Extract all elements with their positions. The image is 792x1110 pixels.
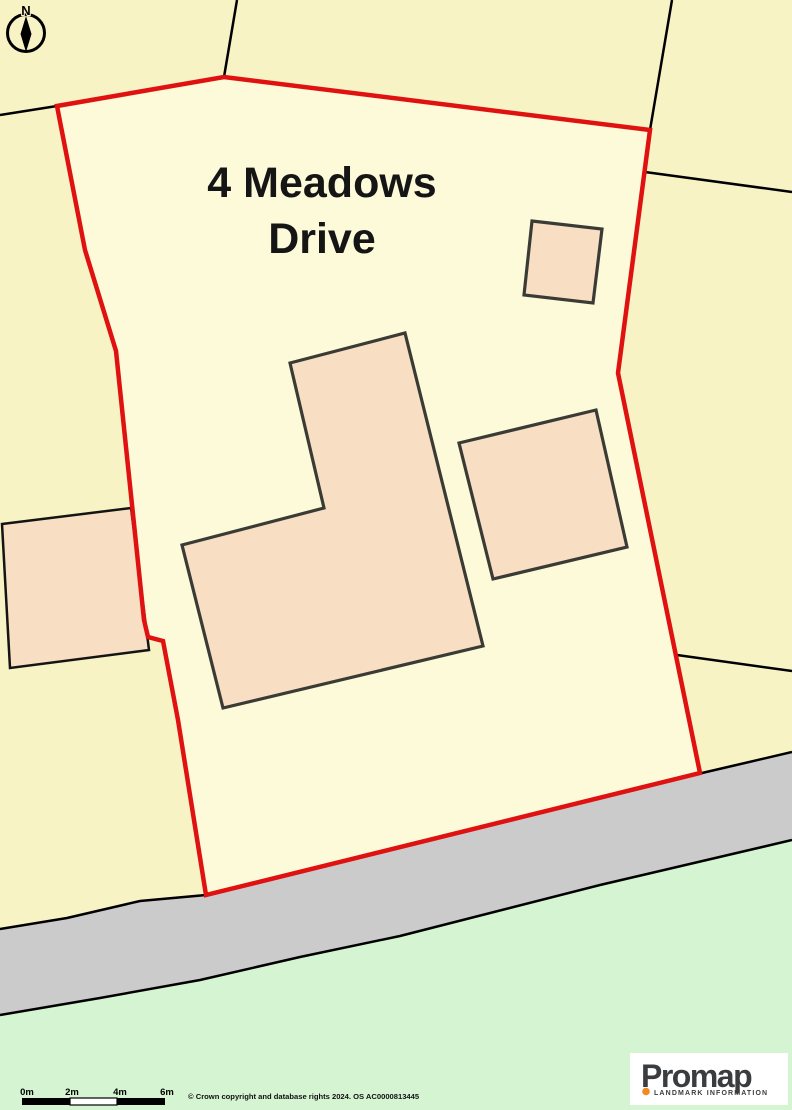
logo-tagline-text: LANDMARK INFORMATION [654,1090,768,1097]
scale-segment-1 [22,1098,70,1105]
scale-segment-2 [70,1098,117,1105]
scale-label-2m: 2m [65,1087,79,1098]
compass-north-label: N [21,3,30,18]
promap-site-plan-page: { "map": { "title_line1": "4 Meadows", "… [0,0,792,1110]
promap-logo: Promap LANDMARK INFORMATION [630,1053,788,1105]
scale-segment-3 [117,1098,165,1105]
site-title-line1: 4 Meadows [207,159,436,207]
neighbour-building-left [2,508,149,668]
scale-label-4m: 4m [113,1087,127,1098]
outbuilding-top-right [524,221,602,303]
scale-label-6m: 6m [160,1087,174,1098]
scale-label-0m: 0m [20,1087,34,1098]
copyright-attribution: © Crown copyright and database rights 20… [188,1092,420,1101]
logo-brand-text: Promap [641,1058,752,1094]
site-title-line2: Drive [268,215,376,263]
logo-orange-dot-icon [642,1088,650,1096]
site-plan-map: N 4 Meadows Drive 0m 2m 4m 6m © Crown co… [0,0,792,1110]
